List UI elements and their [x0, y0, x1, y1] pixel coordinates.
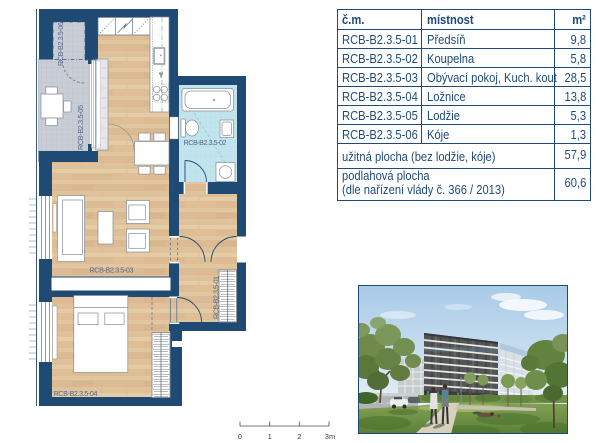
svg-text:1: 1	[268, 432, 272, 441]
svg-text:0: 0	[238, 432, 242, 441]
svg-text:RCB-B2.3.5-04: RCB-B2.3.5-04	[54, 389, 98, 398]
svg-text:3m: 3m	[325, 432, 335, 441]
svg-text:2: 2	[297, 432, 301, 441]
svg-text:RCB-B2.3.5-01: RCB-B2.3.5-01	[212, 276, 221, 319]
svg-text:RCB-B2.3.5-03: RCB-B2.3.5-03	[90, 265, 134, 274]
